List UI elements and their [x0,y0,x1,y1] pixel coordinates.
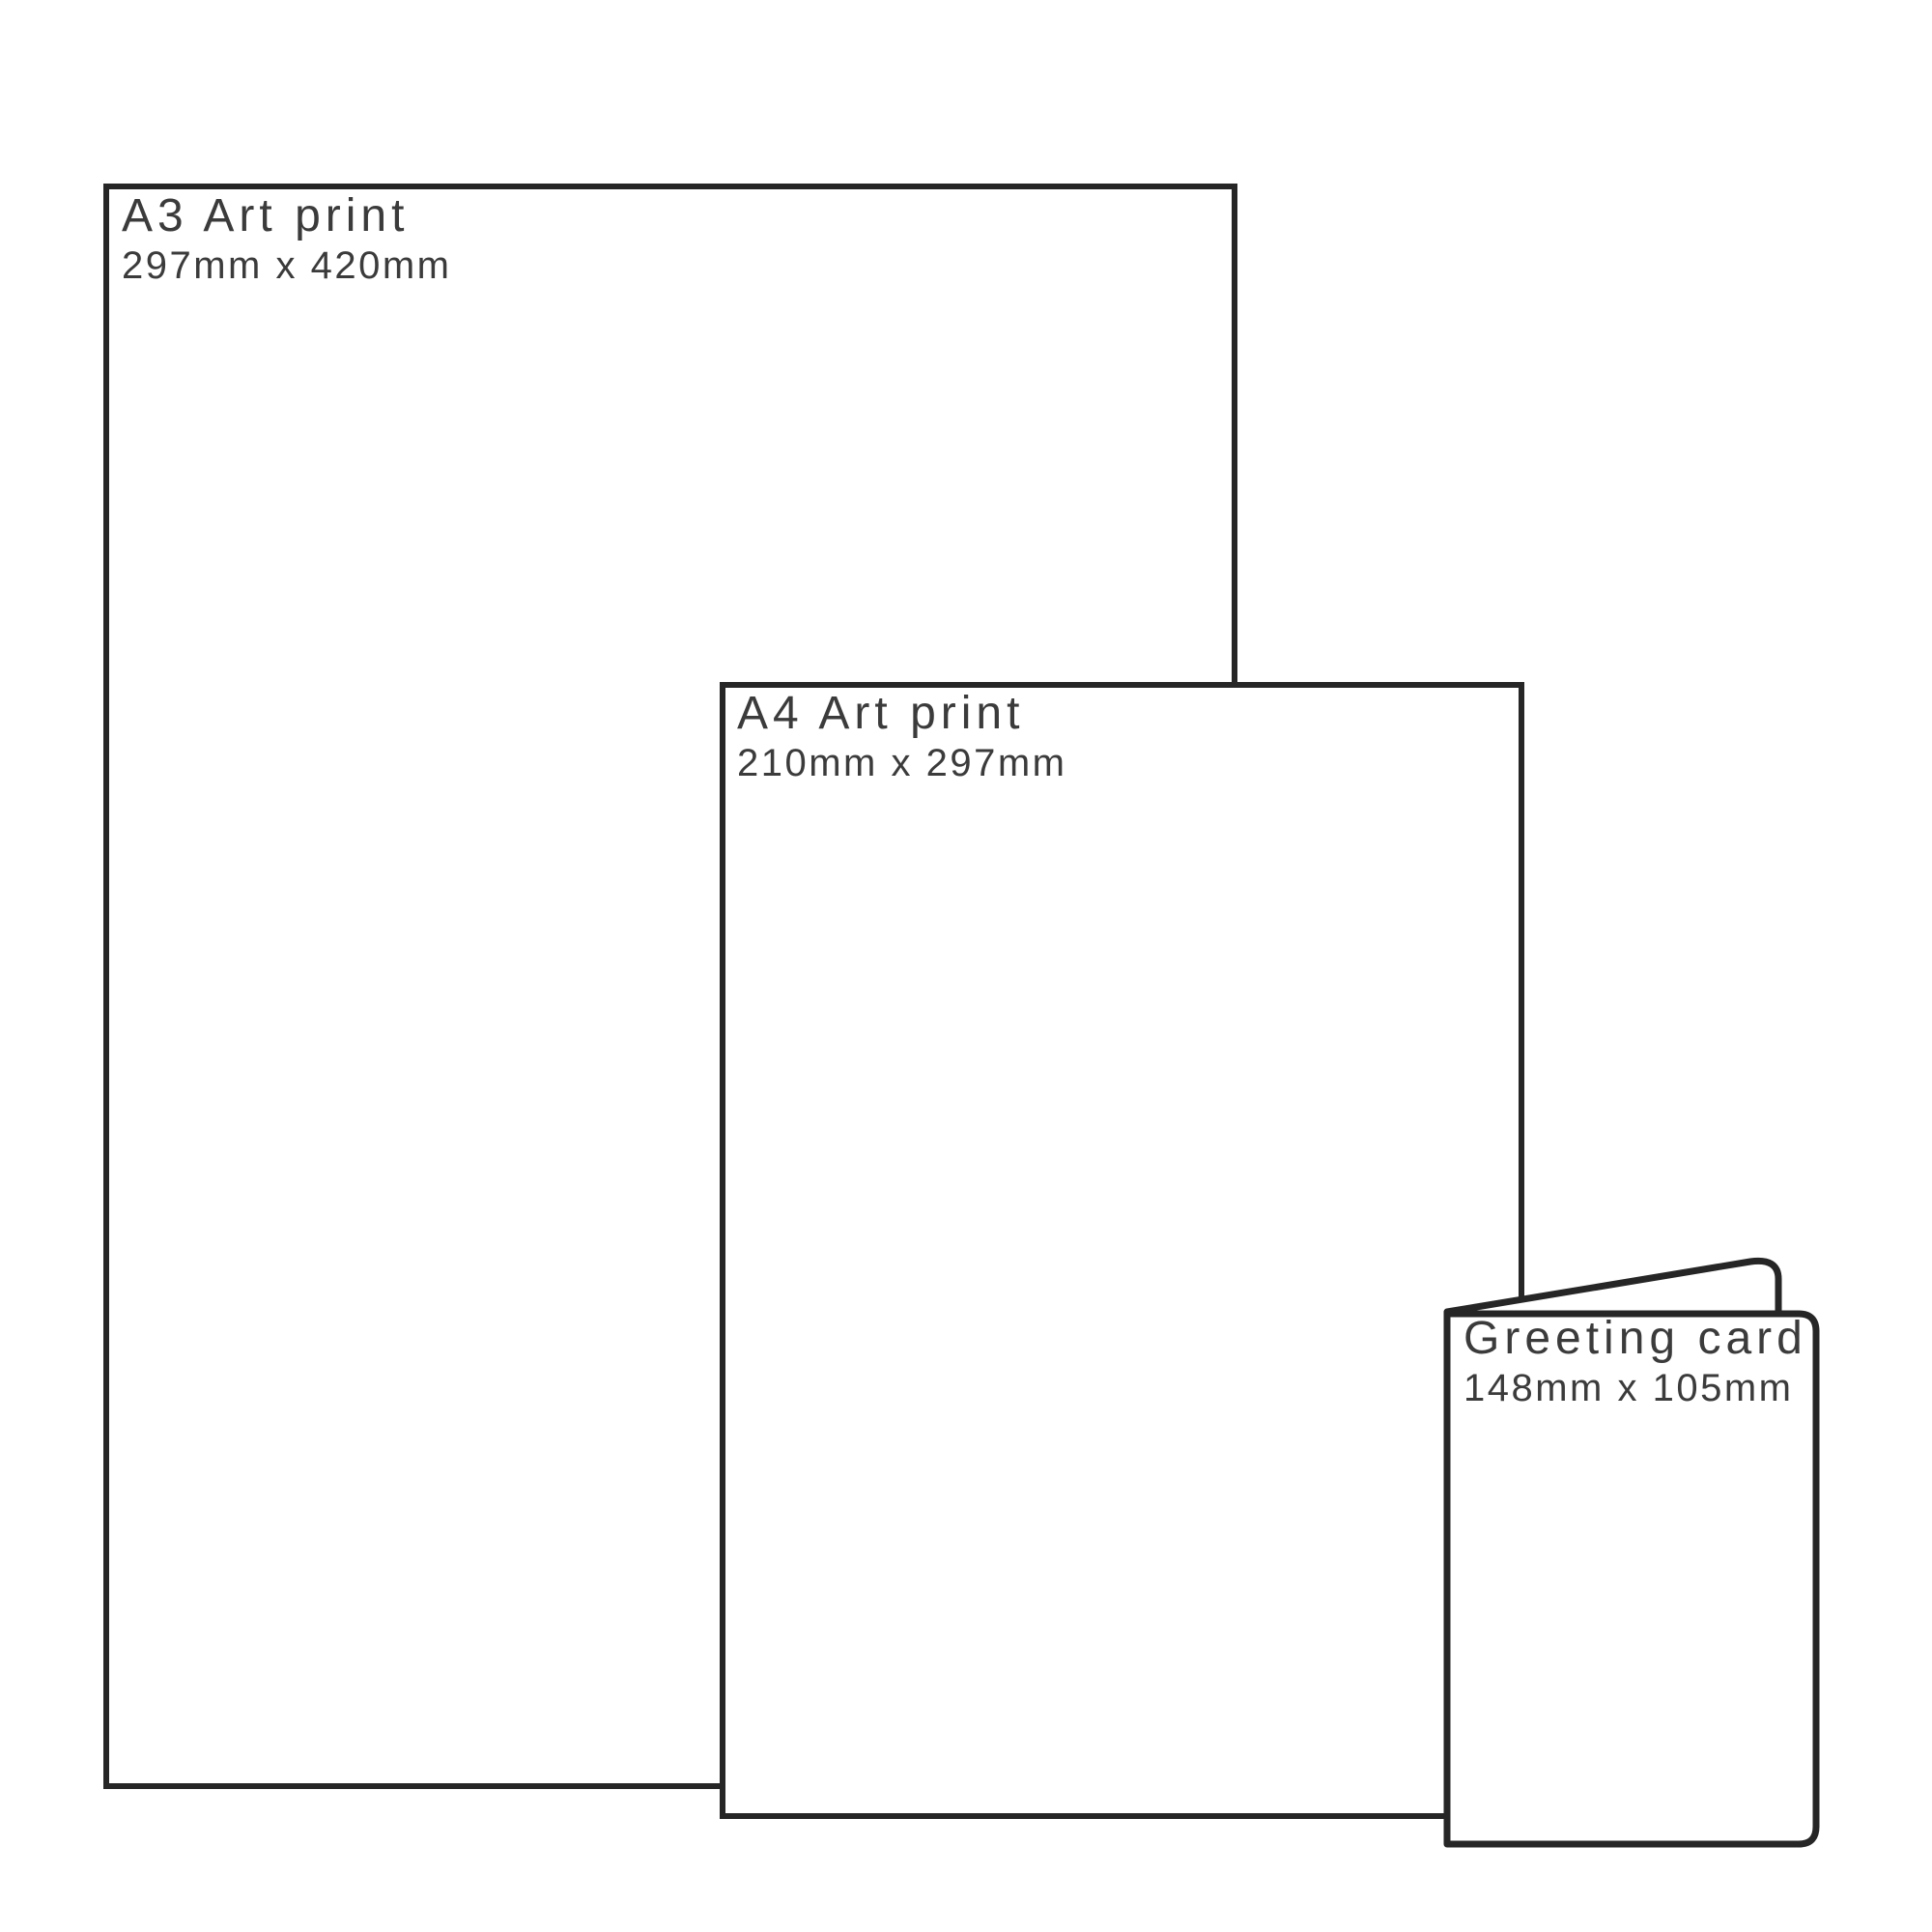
size-comparison-diagram: A3 Art print 297mm x 420mm A4 Art print … [0,0,1932,1932]
a4-print-label-group: A4 Art print 210mm x 297mm [737,689,1066,787]
greeting-card-dimensions: 148mm x 105mm [1463,1364,1807,1412]
a4-print-outline [723,685,1521,1816]
a3-print-dimensions: 297mm x 420mm [122,241,451,290]
a4-print-dimensions: 210mm x 297mm [737,739,1066,787]
a3-print-label-group: A3 Art print 297mm x 420mm [122,191,451,290]
greeting-card-title: Greeting card [1463,1314,1807,1364]
a4-print-title: A4 Art print [737,689,1066,739]
greeting-card-label-group: Greeting card 148mm x 105mm [1463,1314,1807,1412]
a3-print-title: A3 Art print [122,191,451,241]
diagram-shapes [0,0,1932,1932]
